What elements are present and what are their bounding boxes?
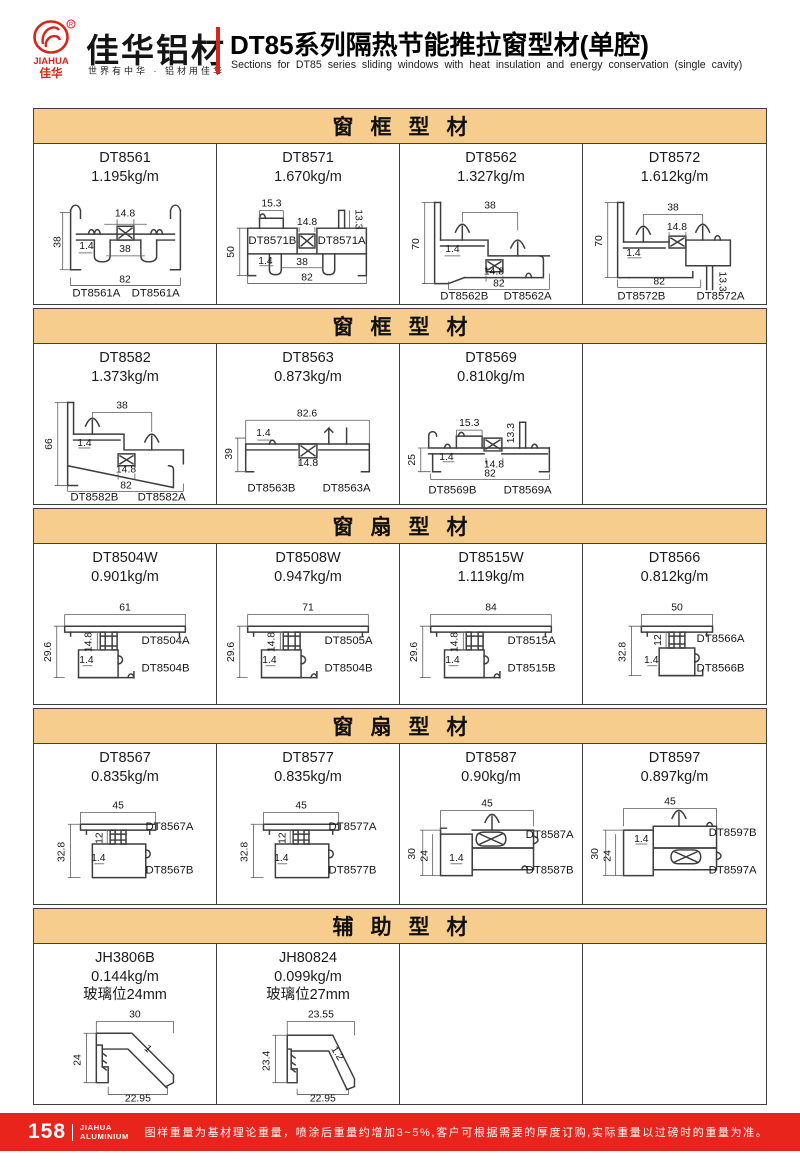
section-title: 辅助型材 [33, 908, 767, 944]
part-label: DT8577B [328, 865, 376, 877]
profile-weight: 1.327kg/m [400, 168, 582, 187]
dimension-label: 38 [296, 257, 308, 268]
dimension-label: 12 [653, 634, 664, 646]
dimension-label: 1.4 [79, 655, 94, 666]
dimension-label: 1.4 [445, 655, 460, 666]
dimension-label: 25 [406, 454, 417, 466]
profile-model: DT8563 [217, 349, 399, 368]
part-label: DT8582A [137, 491, 185, 503]
dimension-label: 29.6 [408, 642, 419, 662]
catalog-cell-DT8569: DT85690.810kg/m15.313.3251.414.882DT8569… [400, 344, 583, 504]
part-label: DT8569B [428, 485, 476, 497]
dimension-label: 82 [653, 277, 665, 288]
dimension-label: 32.8 [618, 642, 629, 662]
logo-brand-en: JIAHUA [33, 56, 69, 67]
catalog-cell-DT8572: DT85721.612kg/m387014.81.48213.3DT8572BD… [583, 144, 766, 304]
dimension-label: 66 [43, 438, 54, 450]
section-row: DT85821.373kg/m38661.414.882DT8582BDT858… [33, 344, 767, 505]
part-label: DT8563B [247, 483, 295, 495]
dimension-label: 22.95 [124, 1093, 150, 1104]
profile-drawing: 7114.829.61.4DT8505ADT8504B [218, 586, 399, 704]
profile-model: DT8566 [583, 549, 766, 568]
profile-model: DT8562 [400, 149, 582, 168]
profile-drawing: 451232.81.4DT8577ADT8577B [218, 786, 399, 904]
part-label: DT8587A [525, 829, 573, 841]
dimension-label: 1.4 [77, 438, 92, 449]
profile-drawing: 6114.829.61.4DT8504ADT8504B [35, 586, 216, 704]
dimension-label: 38 [52, 236, 63, 248]
profile-section: 窗框型材DT85821.373kg/m38661.414.882DT8582BD… [33, 308, 767, 505]
dimension-label: 71 [302, 602, 314, 613]
dimension-label: 61 [119, 602, 131, 613]
catalog-cell-empty [583, 944, 766, 1104]
part-label: DT8562A [503, 290, 551, 302]
profile-drawing: 38661.414.882DT8582BDT8582A [35, 386, 216, 504]
section-title: 窗扇型材 [33, 708, 767, 744]
profile-section: 辅助型材JH3806B0.144kg/m玻璃位24mm3024122.95JH8… [33, 908, 767, 1105]
section-title: 窗框型材 [33, 308, 767, 344]
jiahua-logo-icon: R JIAHUA 佳华 [24, 18, 80, 80]
dimension-label: 14.8 [449, 632, 460, 652]
profile-drawing: 8414.829.61.4DT8515ADT8515B [401, 586, 582, 704]
profile-model: DT8587 [400, 749, 582, 768]
part-label: DT8569A [503, 485, 551, 497]
title-divider [216, 27, 220, 74]
profile-drawing: 15.313.3251.414.882DT8569BDT8569A [401, 386, 582, 504]
dimension-label: 24 [419, 850, 430, 862]
dimension-label: 39 [223, 448, 234, 460]
profile-drawing: 501232.81.4DT8566ADT8566B [584, 586, 765, 704]
section-title: 窗扇型材 [33, 508, 767, 544]
part-label: DT8597B [709, 827, 757, 839]
profile-weight: 0.835kg/m [34, 768, 216, 787]
dimension-label: 82.6 [296, 408, 316, 419]
profile-drawing: 15.313.314.8501.43882DT8571BDT8571A [218, 186, 399, 304]
dimension-label: 1.4 [258, 256, 273, 267]
dimension-label: 82 [120, 481, 132, 492]
page-footer: 158 JIAHUA ALUMINIUM 图样重量为基材理论重量，喷涂后重量约增… [0, 1113, 800, 1151]
part-label: DT8572B [617, 290, 665, 302]
part-label: DT8561A [131, 288, 179, 300]
dimension-label: 23.4 [261, 1050, 272, 1070]
profile-weight: 0.873kg/m [217, 368, 399, 387]
catalog-cell-DT8587: DT85870.90kg/m4530241.4DT8587ADT8587B [400, 744, 583, 904]
profile-drawing: 82.61.43914.8DT8563BDT8563A [218, 386, 399, 504]
dimension-label: 13.3 [505, 423, 516, 443]
profile-weight: 0.897kg/m [583, 768, 766, 787]
catalog-cell-DT8571: DT85711.670kg/m15.313.314.8501.43882DT85… [217, 144, 400, 304]
dimension-label: 1.4 [626, 248, 641, 259]
catalog-cell-DT8582: DT85821.373kg/m38661.414.882DT8582BDT858… [34, 344, 217, 504]
footer-brand: JIAHUA ALUMINIUM [80, 1123, 129, 1141]
catalog-cell-DT8566: DT85660.812kg/m501232.81.4DT8566ADT8566B [583, 544, 766, 704]
section-title: 窗框型材 [33, 108, 767, 144]
profile-glass-note: 玻璃位24mm [34, 986, 216, 1005]
footer-brand-line1: JIAHUA [80, 1123, 112, 1132]
dimension-label: 30 [129, 1009, 141, 1020]
profile-section: 窗框型材DT85611.195kg/m14.8381.43882DT8561AD… [33, 108, 767, 305]
footer-brand-line2: ALUMINIUM [80, 1132, 129, 1141]
page-header: R JIAHUA 佳华 佳华铝材 世界有中华 · 铝材用佳华 DT85系列隔热节… [0, 0, 800, 100]
dimension-label: 45 [481, 799, 493, 810]
catalog-cell-DT8515W: DT8515W1.119kg/m8414.829.61.4DT8515ADT85… [400, 544, 583, 704]
profile-drawing: 4530241.4DT8587ADT8587B [401, 786, 582, 904]
profile-drawing: 387014.81.48213.3DT8572BDT8572A [584, 186, 765, 304]
dimension-label: 82 [119, 275, 131, 286]
section-row: JH3806B0.144kg/m玻璃位24mm3024122.95JH80824… [33, 944, 767, 1105]
dimension-label: 24 [72, 1054, 83, 1066]
dimension-label: 1.4 [445, 244, 460, 255]
profile-model: DT8571 [217, 149, 399, 168]
catalog-cell-DT8563: DT85630.873kg/m82.61.43914.8DT8563BDT856… [217, 344, 400, 504]
part-label: DT8562B [440, 290, 488, 302]
part-label: DT8504B [324, 663, 372, 675]
profile-weight: 1.373kg/m [34, 368, 216, 387]
part-label: DT8505A [324, 635, 372, 647]
catalog-cell-DT8561: DT85611.195kg/m14.8381.43882DT8561ADT856… [34, 144, 217, 304]
catalog-cell-DT8508W: DT8508W0.947kg/m7114.829.61.4DT8505ADT85… [217, 544, 400, 704]
part-label: DT8566B [696, 663, 744, 675]
profile-weight: 0.90kg/m [400, 768, 582, 787]
profile-weight: 0.947kg/m [217, 568, 399, 587]
part-label: DT8587B [525, 865, 573, 877]
dimension-label: 45 [664, 797, 676, 808]
catalog-cell-DT8597: DT85970.897kg/m4530241.4DT8597BDT8597A [583, 744, 766, 904]
catalog-cell-DT8504W: DT8504W0.901kg/m6114.829.61.4DT8504ADT85… [34, 544, 217, 704]
dimension-label: 1.4 [256, 428, 271, 439]
catalog-cell-JH3806B: JH3806B0.144kg/m玻璃位24mm3024122.95 [34, 944, 217, 1104]
dimension-label: 82 [301, 273, 313, 284]
dimension-label: 14.8 [115, 465, 135, 476]
dimension-label: 84 [485, 602, 497, 613]
dimension-label: 1.4 [274, 853, 289, 864]
profile-drawing: 14.8381.43882DT8561ADT8561A [35, 186, 216, 304]
profile-drawing: 4530241.4DT8597BDT8597A [584, 786, 765, 904]
part-label: DT8504B [141, 663, 189, 675]
part-label: DT8567A [145, 821, 193, 833]
dimension-label: 70 [410, 238, 421, 250]
dimension-label: 50 [225, 246, 236, 258]
dimension-label: 1.4 [439, 452, 454, 463]
profile-weight: 0.812kg/m [583, 568, 766, 587]
profile-model: JH3806B [34, 949, 216, 968]
profile-model: DT8567 [34, 749, 216, 768]
profile-drawing: 451232.81.4DT8567ADT8567B [35, 786, 216, 904]
profile-model: DT8597 [583, 749, 766, 768]
dimension-label: 14.8 [296, 217, 316, 228]
dimension-label: 82 [493, 279, 505, 290]
part-label: DT8563A [322, 483, 370, 495]
profile-drawing: 3024122.95 [35, 1005, 216, 1104]
part-label: DT8582B [70, 491, 118, 503]
dimension-label: 45 [295, 800, 307, 811]
part-label: DT8515B [507, 663, 555, 675]
profile-model: DT8515W [400, 549, 582, 568]
section-row: DT8504W0.901kg/m6114.829.61.4DT8504ADT85… [33, 544, 767, 705]
dimension-label: 15.3 [459, 418, 479, 429]
dimension-label: 13.3 [717, 272, 728, 292]
section-row: DT85670.835kg/m451232.81.4DT8567ADT8567B… [33, 744, 767, 905]
footer-divider [72, 1124, 73, 1141]
profile-model: JH80824 [217, 949, 399, 968]
profile-weight: 1.195kg/m [34, 168, 216, 187]
dimension-label: 32.8 [239, 842, 250, 862]
dimension-label: 14.8 [483, 267, 503, 278]
profile-weight: 1.612kg/m [583, 168, 766, 187]
profile-drawing: 38701.414.882DT8562BDT8562A [401, 186, 582, 304]
part-label: DT8566A [696, 633, 744, 645]
catalog-cell-DT8577: DT85770.835kg/m451232.81.4DT8577ADT8577B [217, 744, 400, 904]
part-label: DT8577A [328, 821, 376, 833]
profile-glass-note: 玻璃位27mm [217, 986, 399, 1005]
part-label: DT8561A [72, 288, 120, 300]
part-label: DT8597A [709, 865, 757, 877]
brand-tagline: 世界有中华 · 铝材用佳华 [88, 64, 225, 77]
dimension-label: 12 [94, 832, 105, 844]
dimension-label: 12 [277, 832, 288, 844]
dimension-label: 30 [406, 848, 417, 860]
dimension-label: 29.6 [42, 642, 53, 662]
dimension-label: 45 [112, 800, 124, 811]
logo-emblem-cn: 佳华 [40, 66, 63, 80]
profile-model: DT8572 [583, 149, 766, 168]
part-label: DT8572A [696, 290, 744, 302]
profile-weight: 0.144kg/m [34, 968, 216, 987]
section-row: DT85611.195kg/m14.8381.43882DT8561ADT856… [33, 144, 767, 305]
page-title: DT85系列隔热节能推拉窗型材(单腔) [230, 25, 649, 62]
dimension-label: 1.4 [449, 853, 464, 864]
part-label: DT8567B [145, 865, 193, 877]
dimension-label: 50 [671, 602, 683, 613]
profile-weight: 0.835kg/m [217, 768, 399, 787]
dimension-label: 70 [594, 235, 605, 247]
dimension-label: 30 [590, 848, 601, 860]
profile-model: DT8508W [217, 549, 399, 568]
registered-mark: R [69, 22, 74, 28]
catalog-cell-empty [583, 344, 766, 504]
part-label: DT8515A [507, 635, 555, 647]
dimension-label: 14.8 [266, 632, 277, 652]
profile-weight: 1.119kg/m [400, 568, 582, 587]
dimension-label: 1.4 [634, 834, 649, 845]
dimension-label: 38 [119, 244, 131, 255]
profile-section: 窗扇型材DT8504W0.901kg/m6114.829.61.4DT8504A… [33, 508, 767, 705]
dimension-label: 1.4 [79, 241, 94, 252]
dimension-label: 13.3 [352, 209, 363, 229]
part-label: DT8571B [248, 235, 296, 247]
profile-model: DT8582 [34, 349, 216, 368]
profile-drawing: 23.5523.41.222.95 [218, 1005, 399, 1104]
catalog-cell-DT8562: DT85621.327kg/m38701.414.882DT8562BDT856… [400, 144, 583, 304]
dimension-label: 24 [603, 850, 614, 862]
catalog-cell-empty [400, 944, 583, 1104]
profile-model: DT8561 [34, 149, 216, 168]
dimension-label: 1.4 [644, 655, 659, 666]
dimension-label: 38 [116, 400, 128, 411]
profile-weight: 0.810kg/m [400, 368, 582, 387]
profile-weight: 0.901kg/m [34, 568, 216, 587]
dimension-label: 1.2 [328, 1044, 345, 1062]
dimension-label: 1.4 [262, 655, 277, 666]
dimension-label: 22.95 [309, 1093, 335, 1104]
dimension-label: 38 [667, 202, 679, 213]
dimension-label: 32.8 [56, 842, 67, 862]
dimension-label: 14.8 [83, 632, 94, 652]
profile-weight: 0.099kg/m [217, 968, 399, 987]
part-label: DT8571A [317, 235, 365, 247]
footer-note: 图样重量为基材理论重量，喷涂后重量约增加3~5%,客户可根据需要的厚度订购,实际… [129, 1124, 800, 1140]
dimension-label: 15.3 [261, 199, 281, 210]
dimension-label: 29.6 [225, 642, 236, 662]
dimension-label: 14.8 [297, 458, 317, 469]
page-number: 158 [28, 1120, 66, 1144]
dimension-label: 38 [484, 200, 496, 211]
dimension-label: 14.8 [114, 208, 134, 219]
page-subtitle: Sections for DT85 series sliding windows… [231, 59, 742, 71]
catalog-cell-JH80824: JH808240.099kg/m玻璃位27mm23.5523.41.222.95 [217, 944, 400, 1104]
profile-model: DT8504W [34, 549, 216, 568]
profile-model: DT8569 [400, 349, 582, 368]
catalog-cell-DT8567: DT85670.835kg/m451232.81.4DT8567ADT8567B [34, 744, 217, 904]
dimension-label: 23.55 [307, 1009, 333, 1020]
dimension-label: 82 [484, 469, 496, 480]
profile-model: DT8577 [217, 749, 399, 768]
dimension-label: 1.4 [91, 853, 106, 864]
catalog-table: 窗框型材DT85611.195kg/m14.8381.43882DT8561AD… [33, 108, 767, 1108]
dimension-label: 14.8 [667, 222, 687, 233]
part-label: DT8504A [141, 635, 189, 647]
profile-section: 窗扇型材DT85670.835kg/m451232.81.4DT8567ADT8… [33, 708, 767, 905]
profile-weight: 1.670kg/m [217, 168, 399, 187]
